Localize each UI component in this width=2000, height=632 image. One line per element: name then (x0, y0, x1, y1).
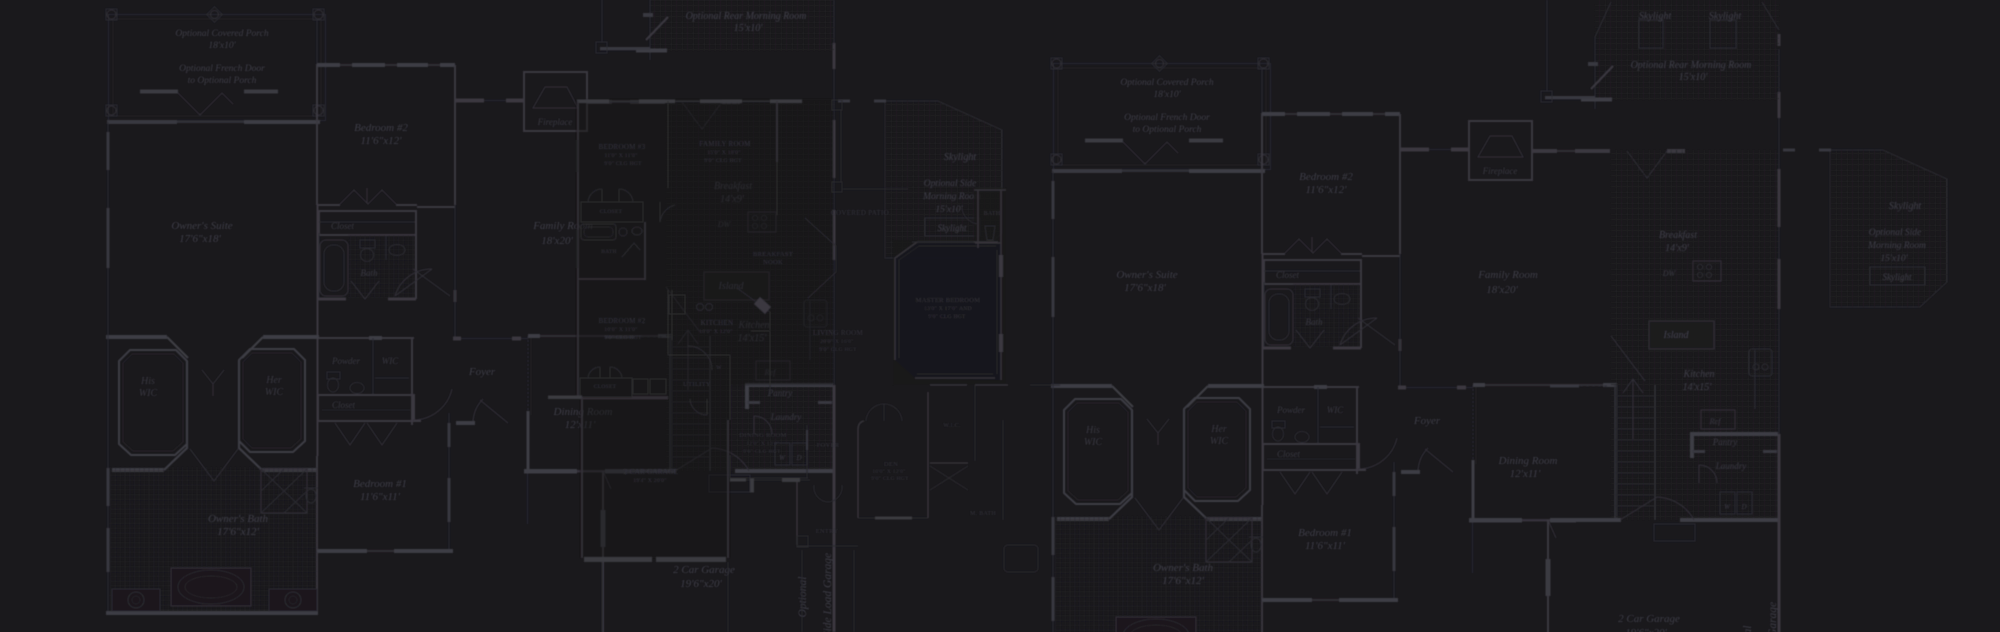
svg-text:DINING ROOM: DINING ROOM (739, 432, 787, 439)
svg-text:10'0" X 12'0": 10'0" X 12'0" (699, 329, 733, 335)
svg-text:19'4" X 20'0": 19'4" X 20'0" (633, 478, 667, 484)
svg-text:9'0" CLG HGT: 9'0" CLG HGT (604, 335, 642, 341)
svg-text:CLOSET: CLOSET (600, 209, 623, 215)
svg-text:2 CAR GARAGE: 2 CAR GARAGE (624, 468, 678, 476)
svg-text:W: W (716, 365, 722, 371)
svg-text:COVERED PATIO: COVERED PATIO (831, 209, 889, 217)
svg-text:FOYER: FOYER (817, 442, 840, 449)
svg-text:9'0" CLG HGT: 9'0" CLG HGT (871, 476, 909, 482)
svg-text:12'0" X 13'0": 12'0" X 13'0" (746, 441, 780, 447)
svg-text:FAMILY ROOM: FAMILY ROOM (699, 140, 751, 148)
svg-text:DEN: DEN (884, 461, 898, 468)
svg-text:NOOK: NOOK (763, 259, 783, 266)
svg-text:10'0" X 12'0": 10'0" X 12'0" (872, 469, 906, 475)
svg-text:13'0" X 17'0" AND: 13'0" X 17'0" AND (924, 306, 972, 312)
svg-text:M. BATH: M. BATH (970, 511, 996, 517)
svg-text:W.I.C.: W.I.C. (943, 423, 961, 429)
svg-text:BATH: BATH (984, 211, 1001, 217)
svg-text:20'0" X 16'0": 20'0" X 16'0" (820, 339, 854, 345)
svg-text:9'0" CLG HGT: 9'0" CLG HGT (604, 161, 642, 167)
svg-text:15'0" X 18'0": 15'0" X 18'0" (707, 150, 741, 156)
svg-text:10'0" X 11'0": 10'0" X 11'0" (604, 327, 637, 333)
svg-text:BREAKFAST: BREAKFAST (753, 251, 793, 258)
svg-text:ENTRY: ENTRY (816, 528, 839, 535)
svg-text:9'0" CLG HGT: 9'0" CLG HGT (928, 314, 966, 320)
svg-text:9'0" CLG HGT: 9'0" CLG HGT (743, 449, 781, 455)
svg-text:BATH: BATH (601, 249, 617, 255)
svg-text:UTILITY: UTILITY (683, 381, 711, 388)
svg-text:CLOSET: CLOSET (594, 384, 617, 390)
svg-text:11'0" X 11'0": 11'0" X 11'0" (604, 153, 637, 159)
svg-text:9'0" CLG HGT: 9'0" CLG HGT (819, 347, 857, 353)
svg-text:BEDROOM #2: BEDROOM #2 (599, 317, 646, 325)
svg-text:9'0" CLG HGT: 9'0" CLG HGT (704, 158, 742, 164)
svg-text:KITCHEN: KITCHEN (701, 319, 734, 327)
svg-text:LIVING ROOM: LIVING ROOM (813, 329, 864, 337)
svg-text:MASTER BEDROOM: MASTER BEDROOM (916, 297, 981, 304)
svg-text:BEDROOM #3: BEDROOM #3 (599, 143, 646, 151)
